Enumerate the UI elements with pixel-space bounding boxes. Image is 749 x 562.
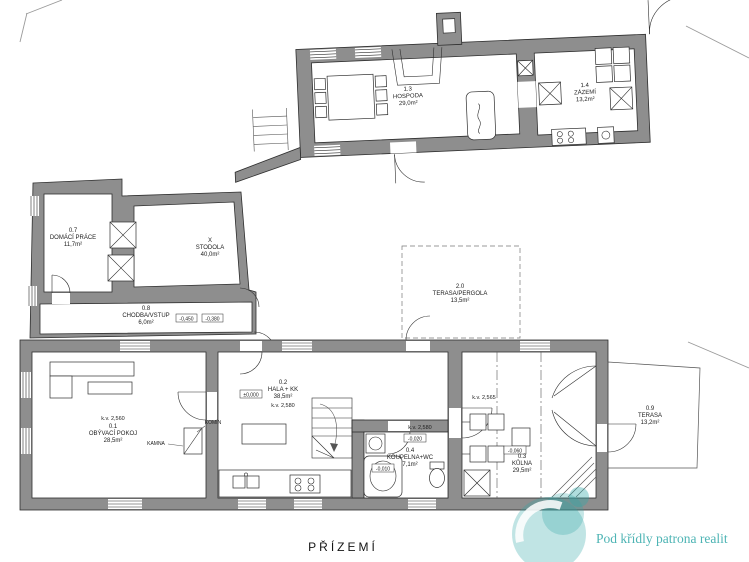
- floor-plan-drawing: 2.0 TERASA/PERGOLA 13,5m²: [0, 0, 749, 562]
- chodba-label-id: 0.8: [142, 306, 151, 312]
- kulna-ceiling: k.v. 2,565: [472, 395, 495, 401]
- obyvaci-ceiling: k.v. 2,560: [101, 416, 124, 422]
- obyvaci-label-area: 28,5m²: [104, 438, 123, 444]
- outbuilding: 0.7 DOMÁCÍ PRÁCE 11,7m² X STODOLA 40,0m²…: [27, 179, 276, 354]
- watermark: Pod křídly patrona realit: [512, 487, 728, 562]
- domaci-prace-label-id: 0.7: [69, 228, 78, 234]
- obyvaci-label-id: 0.1: [109, 424, 118, 430]
- exterior-steps: [252, 108, 288, 151]
- level-badge: -0,010: [372, 464, 394, 473]
- hala-ceiling: k.v. 2,580: [271, 403, 294, 409]
- domaci-prace-label-area: 11,7m²: [64, 242, 82, 248]
- wall-stub: [234, 147, 301, 182]
- hala-label-area: 38,5m²: [274, 394, 293, 400]
- hospoda-label-area: 29,0m²: [399, 100, 418, 107]
- kulna-label-id: 0.3: [518, 454, 527, 460]
- kitchen-counter: [219, 470, 351, 497]
- chodba-label-area: 6,0m²: [138, 320, 153, 326]
- kulna-label-name: KŮLNA: [512, 460, 532, 467]
- svg-text:-0,010: -0,010: [376, 467, 390, 473]
- kamna-annotation: KAMNA: [147, 441, 165, 447]
- sink-icon: [598, 127, 615, 144]
- equipment-xbox-icon: [464, 470, 490, 496]
- zazemi-label-id: 1.4: [580, 83, 589, 89]
- svg-text:-0,380: -0,380: [205, 317, 219, 323]
- floor-plan-page: 2.0 TERASA/PERGOLA 13,5m²: [0, 0, 749, 562]
- door-arc: [597, 424, 636, 452]
- kitchen-island: [242, 424, 286, 444]
- floor-title: PŘÍZEMÍ: [308, 539, 378, 554]
- top-building: 1.3 HOSPODA 29,0m² 1.4 ZÁZEMÍ 13,2m²: [228, 0, 691, 190]
- svg-text:-0,450: -0,450: [179, 317, 193, 323]
- kulna-label-area: 29,5m²: [513, 468, 532, 474]
- stove-icon: [552, 128, 587, 145]
- zazemi-label-name: ZÁZEMÍ: [574, 88, 597, 96]
- hala-label-name: HALA + KK: [268, 387, 298, 393]
- terasa-label-id: 0.9: [646, 406, 655, 412]
- bathroom-door-gap: [388, 421, 410, 431]
- pergola-label-name: TERASA/PERGOLA: [433, 291, 488, 297]
- main-building: KOMÍN KAMNA: [20, 316, 636, 510]
- terrace-area: 0.9 TERASA 13,2m²: [608, 362, 700, 468]
- level-badge: -0,020: [404, 434, 426, 443]
- toilet-icon: [430, 462, 445, 488]
- pergola-label-id: 2.0: [456, 284, 465, 290]
- zazemi-label-area: 13,2m²: [576, 97, 595, 104]
- hospoda-label-id: 1.3: [403, 87, 412, 93]
- chodba-label-name: CHODBA/VSTUP: [122, 313, 169, 319]
- svg-text:±0,000: ±0,000: [243, 393, 258, 399]
- bathtub-icon: [364, 456, 402, 497]
- pergola-label-area: 13,5m²: [451, 298, 470, 304]
- koupelna-label-id: 0.4: [406, 448, 415, 454]
- washing-machine-icon: [366, 434, 385, 453]
- domaci-prace-label-name: DOMÁCÍ PRÁCE: [50, 234, 96, 241]
- koupelna-label-area: 7,1m²: [402, 462, 417, 468]
- terasa-label-name: TERASA: [638, 413, 662, 419]
- koupelna-label-name: KOUPELNA+WC: [387, 455, 434, 461]
- stodola-label-id: X: [208, 238, 212, 244]
- komin-annotation: KOMÍN: [205, 419, 222, 426]
- koupelna-ceiling: k.v. 2,580: [408, 425, 431, 431]
- hala-label-id: 0.2: [279, 380, 288, 386]
- level-badge: ±0,000: [240, 390, 262, 399]
- svg-text:-0,020: -0,020: [408, 437, 422, 443]
- stodola-label-name: STODOLA: [196, 245, 225, 251]
- dining-table: [314, 74, 388, 121]
- door-xbox-icon: [518, 60, 534, 76]
- pergola-area: 2.0 TERASA/PERGOLA 13,5m²: [402, 246, 520, 338]
- stodola-label-area: 40,0m²: [201, 252, 220, 258]
- door-arc: [648, 0, 686, 34]
- passage-gap: [517, 81, 536, 108]
- terasa-label-area: 13,2m²: [641, 420, 660, 426]
- obyvaci-label-name: OBÝVACÍ POKOJ: [89, 430, 137, 437]
- watermark-text: Pod křídly patrona realit: [596, 531, 728, 546]
- piano-icon: [466, 91, 496, 140]
